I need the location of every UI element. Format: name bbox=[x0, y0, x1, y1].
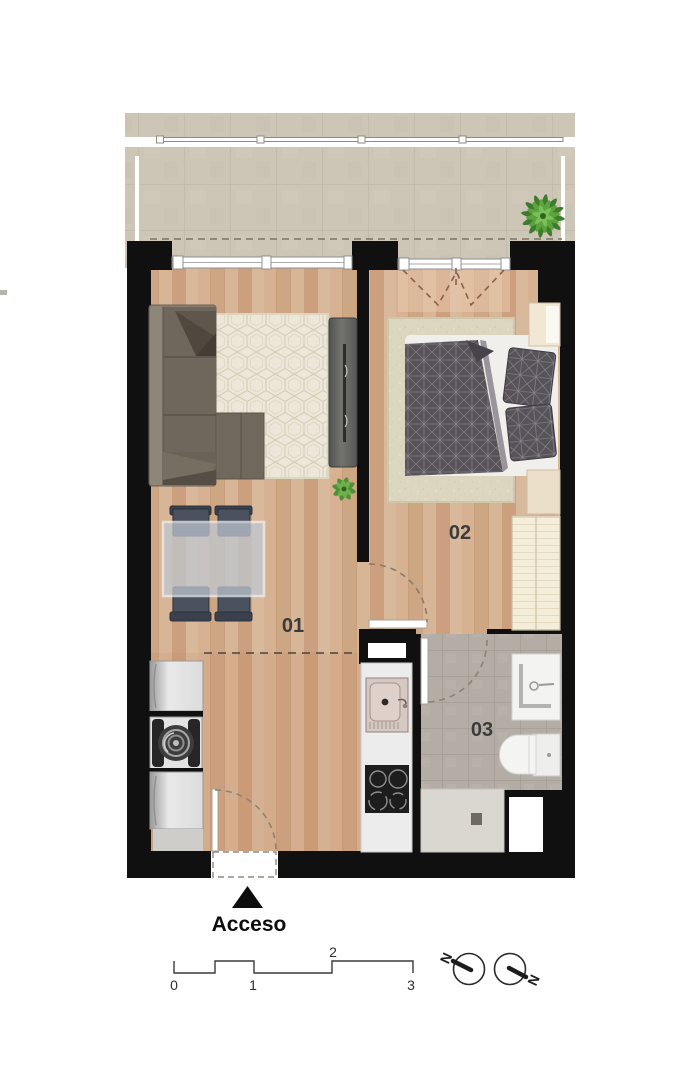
svg-text:03: 03 bbox=[471, 719, 493, 741]
svg-text:Acceso: Acceso bbox=[212, 913, 287, 936]
svg-text:0: 0 bbox=[170, 977, 178, 993]
svg-text:01: 01 bbox=[282, 615, 304, 637]
svg-text:3: 3 bbox=[407, 977, 415, 993]
svg-text:02: 02 bbox=[449, 522, 471, 544]
svg-text:1: 1 bbox=[249, 977, 257, 993]
svg-text:2: 2 bbox=[329, 944, 337, 960]
